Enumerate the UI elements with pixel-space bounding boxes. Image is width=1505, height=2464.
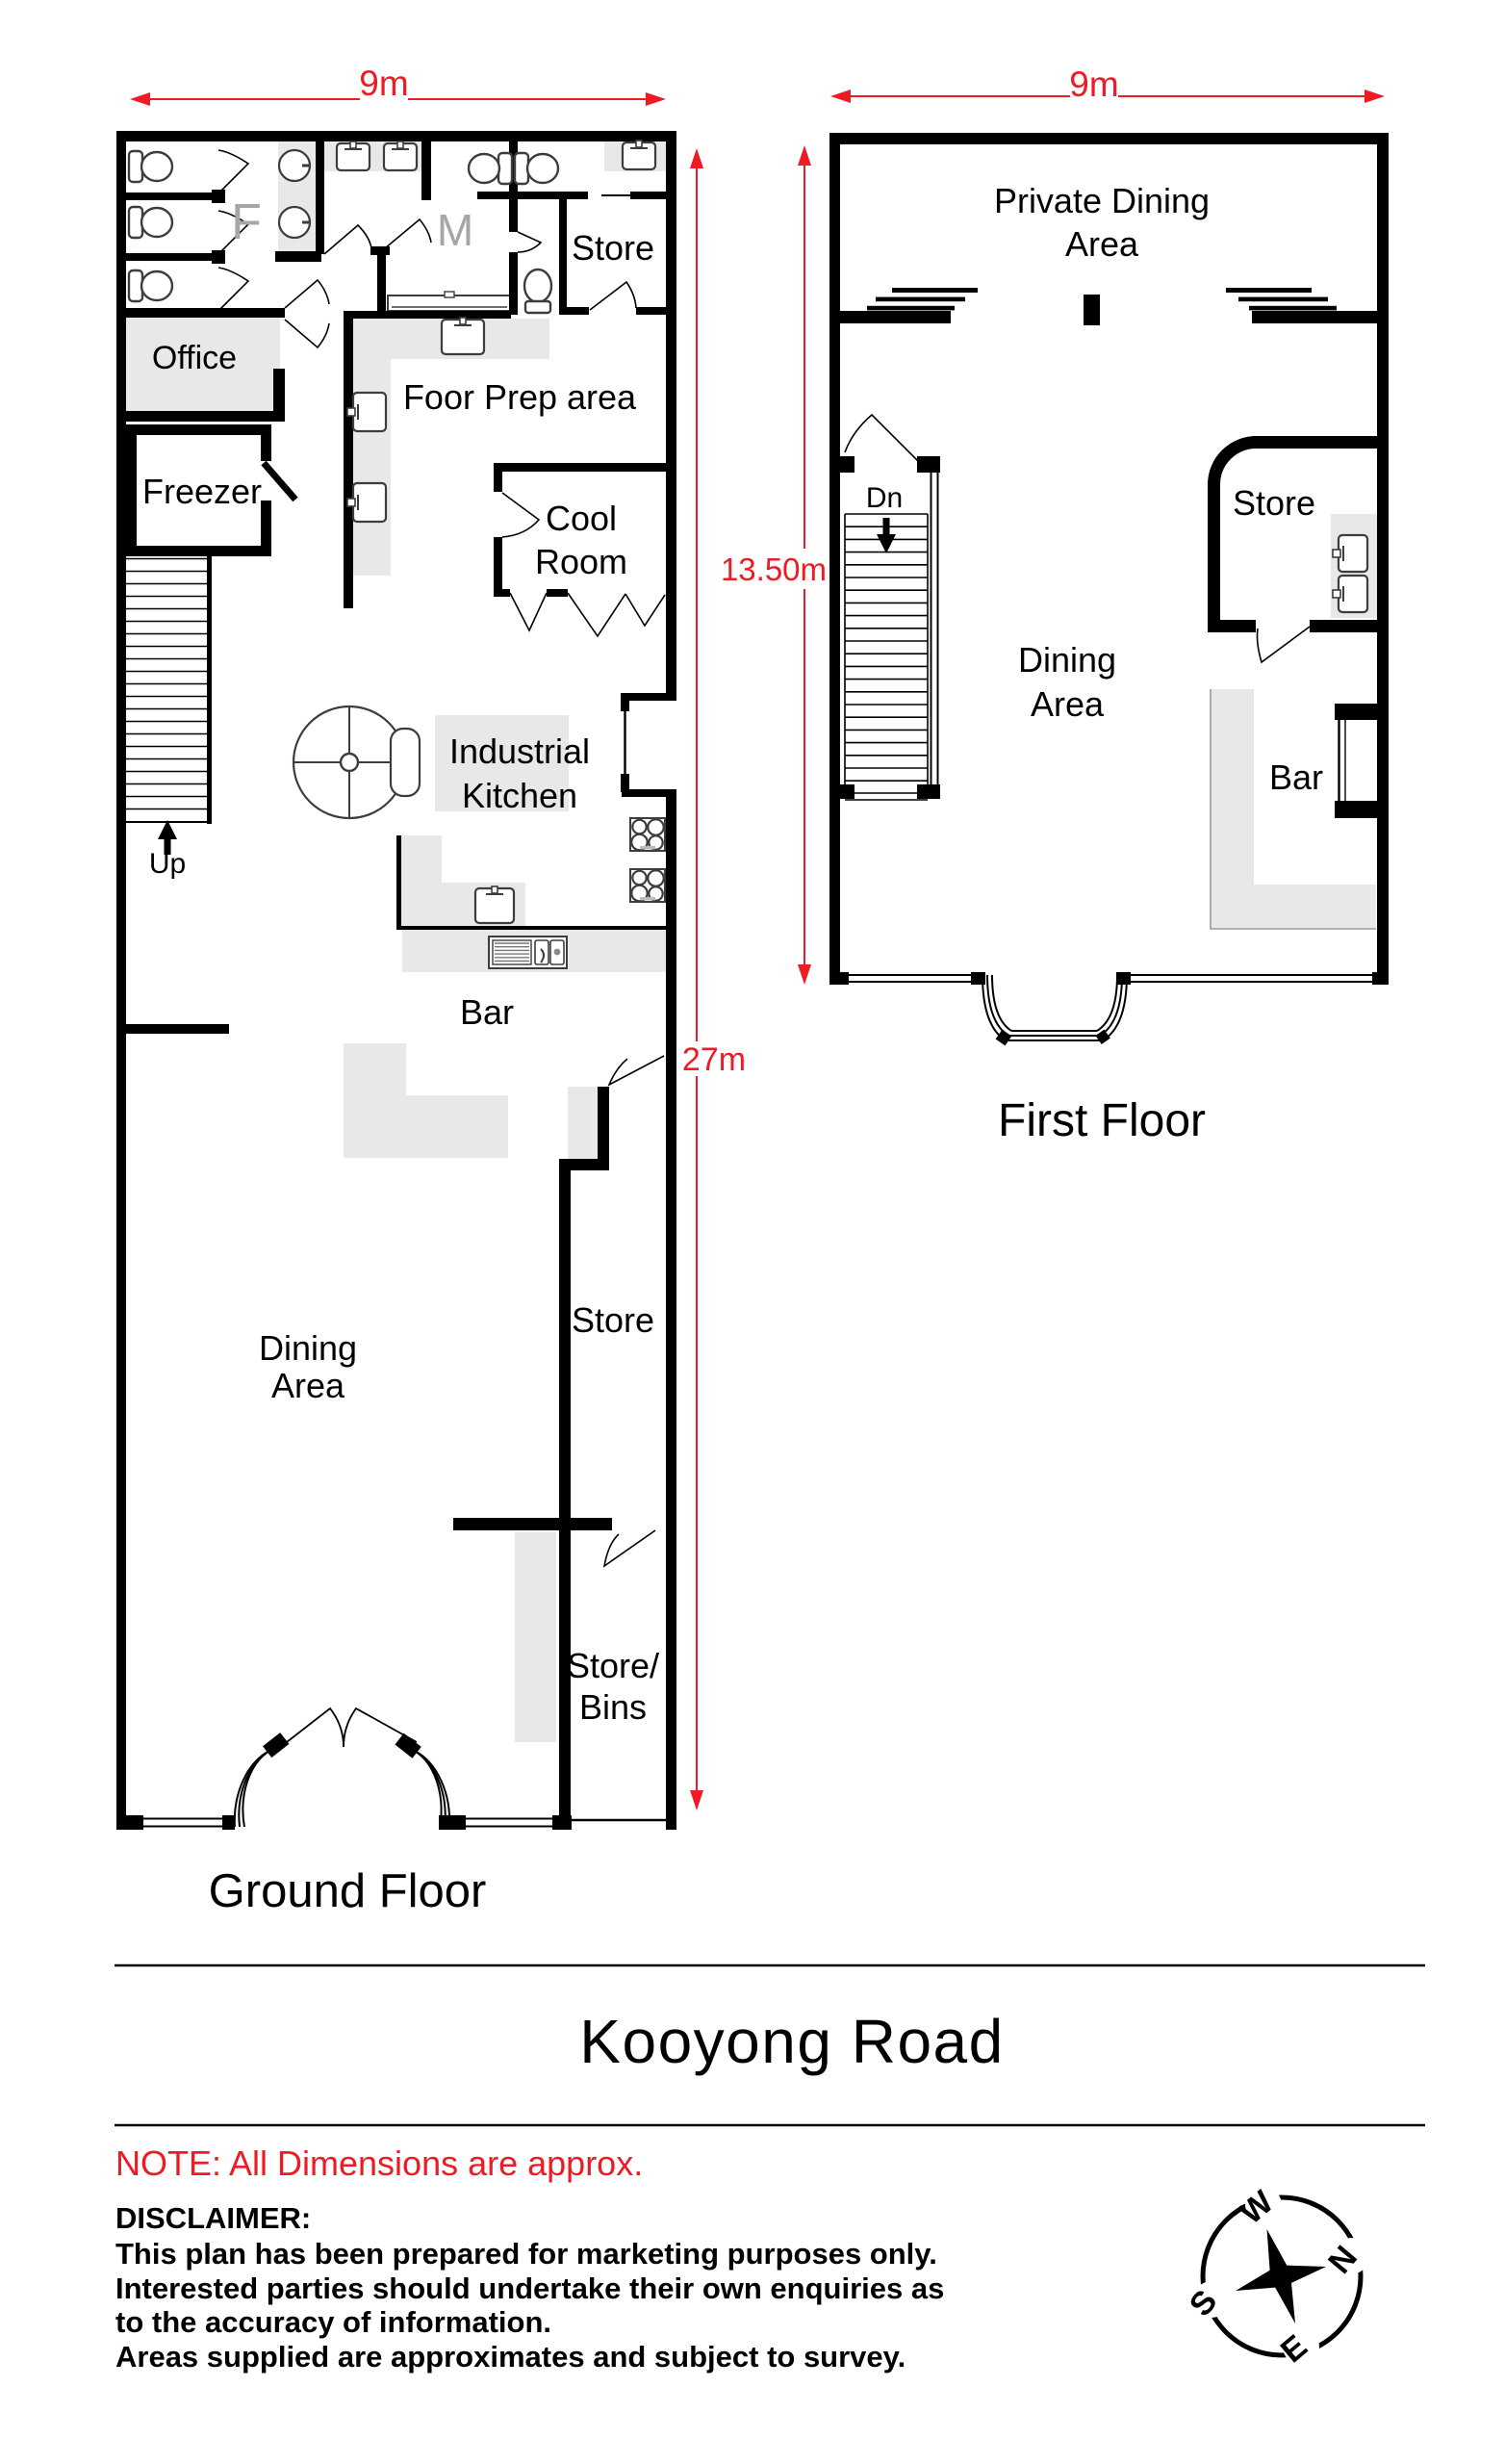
svg-text:Areas supplied are approximate: Areas supplied are approximates and subj…: [115, 2340, 906, 2374]
svg-text:Industrial: Industrial: [449, 731, 590, 771]
svg-text:Dn: Dn: [866, 482, 903, 514]
svg-text:Dining: Dining: [259, 1328, 357, 1368]
svg-text:Area: Area: [271, 1366, 345, 1405]
svg-text:F: F: [231, 194, 262, 250]
svg-text:Store: Store: [572, 1300, 654, 1340]
svg-text:Bar: Bar: [460, 992, 514, 1032]
svg-text:First Floor: First Floor: [998, 1095, 1206, 1146]
svg-text:Up: Up: [149, 848, 186, 880]
svg-text:to the accuracy of information: to the accuracy of information.: [115, 2305, 551, 2339]
svg-text:9m: 9m: [359, 64, 408, 103]
svg-text:Store: Store: [572, 228, 654, 268]
svg-text:Office: Office: [152, 340, 237, 376]
svg-text:Freezer: Freezer: [142, 472, 262, 511]
svg-text:9m: 9m: [1069, 64, 1118, 104]
svg-text:Private Dining: Private Dining: [994, 181, 1210, 220]
svg-text:Ground Floor: Ground Floor: [209, 1865, 487, 1917]
svg-text:Area: Area: [1065, 224, 1139, 264]
svg-text:Foor Prep area: Foor Prep area: [403, 377, 637, 417]
svg-text:Store: Store: [1233, 483, 1315, 523]
svg-text:Room: Room: [535, 542, 627, 581]
svg-text:Kitchen: Kitchen: [462, 776, 577, 815]
svg-text:Area: Area: [1031, 684, 1105, 724]
svg-text:M: M: [437, 205, 473, 255]
svg-text:Cool: Cool: [546, 499, 617, 538]
svg-text:NOTE: All Dimensions are appro: NOTE: All Dimensions are approx.: [115, 2143, 643, 2183]
svg-text:27m: 27m: [682, 1041, 746, 1078]
svg-text:Store/: Store/: [567, 1646, 659, 1685]
svg-text:13.50m: 13.50m: [721, 552, 827, 587]
svg-text:Interested parties should unde: Interested parties should undertake thei…: [115, 2271, 944, 2305]
svg-text:Bar: Bar: [1269, 757, 1323, 797]
svg-text:DISCLAIMER:: DISCLAIMER:: [115, 2201, 311, 2235]
svg-text:Kooyong Road: Kooyong Road: [579, 2007, 1004, 2076]
svg-text:Dining: Dining: [1018, 640, 1116, 680]
svg-text:Bins: Bins: [579, 1687, 647, 1727]
svg-text:This plan has been prepared fo: This plan has been prepared for marketin…: [115, 2237, 937, 2271]
